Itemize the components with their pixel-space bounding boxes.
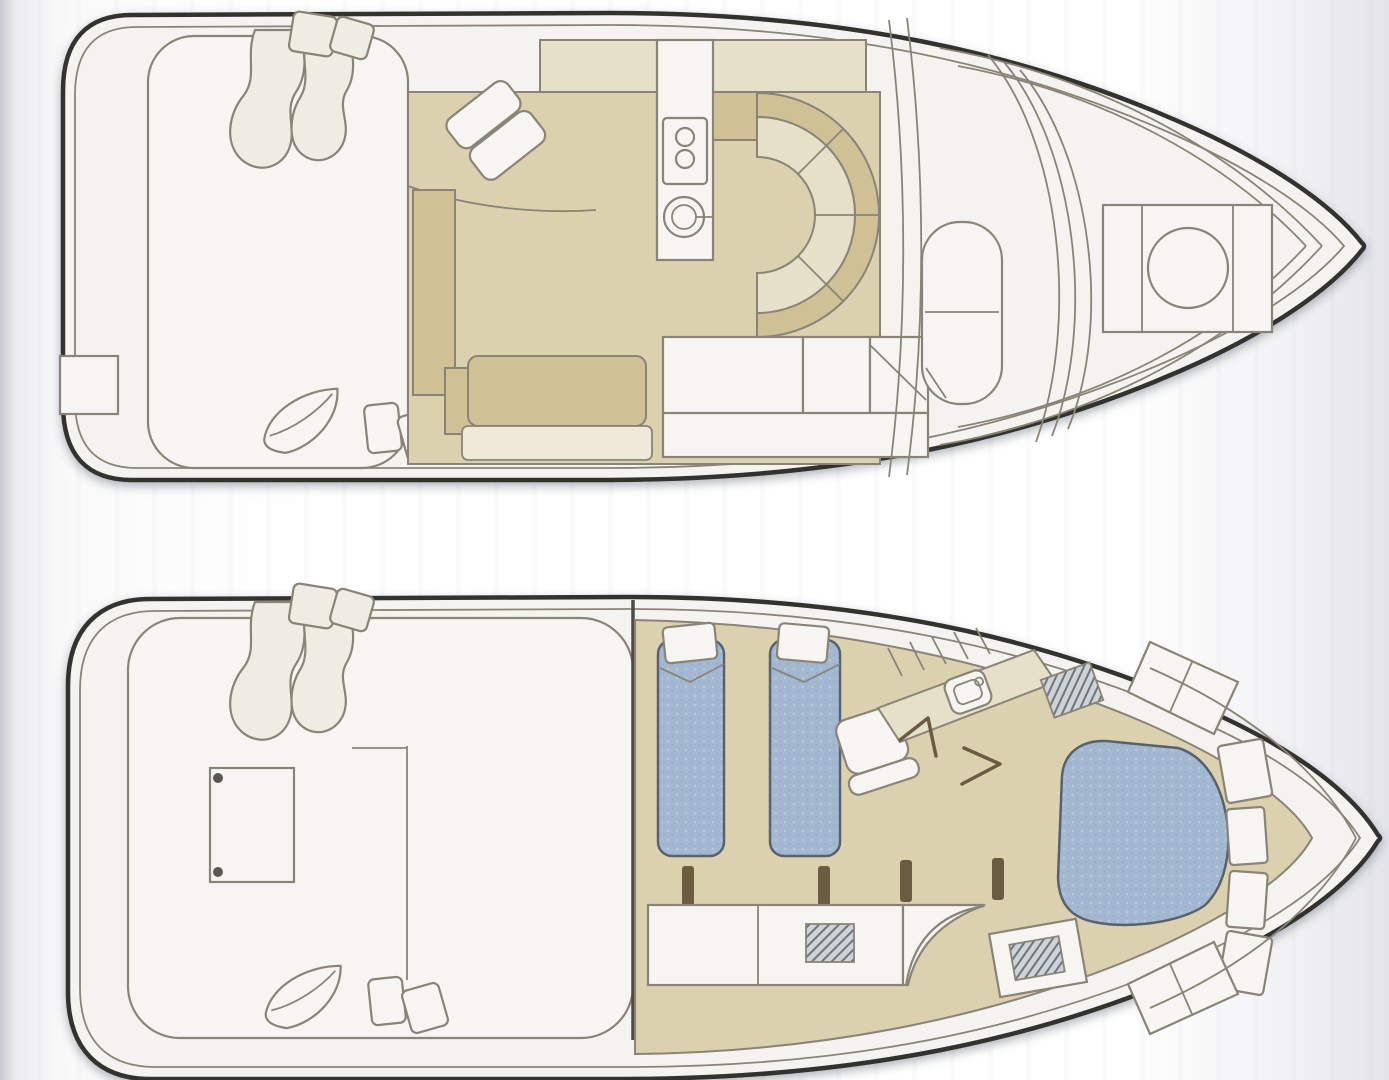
bow-cabinet-2 <box>1226 807 1268 866</box>
companionway <box>922 222 1002 404</box>
vent-grille-2 <box>1009 936 1064 980</box>
master-island-berth <box>1058 741 1228 925</box>
berth-pillow-starboard <box>777 623 830 663</box>
counter-forward <box>989 919 1087 997</box>
hatch-hinge-2 <box>213 867 223 877</box>
side-cabinet <box>413 190 455 395</box>
bench-seat-2 <box>803 337 870 415</box>
transom-step <box>60 356 118 414</box>
sofa-seat <box>462 426 652 460</box>
bow-cabinet-3 <box>1226 871 1268 930</box>
lower-deck-plan <box>68 583 1380 1079</box>
main-deck-plan <box>60 11 1364 480</box>
deck-locker-a <box>364 402 403 453</box>
galley-counter <box>648 905 903 985</box>
door-post-4 <box>992 858 1004 900</box>
sofa-back <box>468 356 646 426</box>
berth-pillow-port <box>662 622 717 663</box>
yacht-floorplan: Motor yacht two-deck floor plan, bow fac… <box>0 0 1389 1080</box>
dinette-top-seat <box>713 92 763 140</box>
door-post-3 <box>900 860 912 902</box>
hatch-hinge-1 <box>213 773 223 783</box>
door-post-1 <box>682 866 694 906</box>
engine-hatch <box>210 768 294 882</box>
vent-grille-1 <box>806 924 854 962</box>
bench-kick-band <box>663 413 928 457</box>
bench-seat-1 <box>663 337 803 415</box>
bow-hatch <box>1103 205 1272 332</box>
aft-cockpit <box>128 618 633 1038</box>
deck-locker-a <box>368 976 407 1025</box>
bow-cabinet-1 <box>1217 738 1272 803</box>
door-post-2 <box>818 866 830 906</box>
